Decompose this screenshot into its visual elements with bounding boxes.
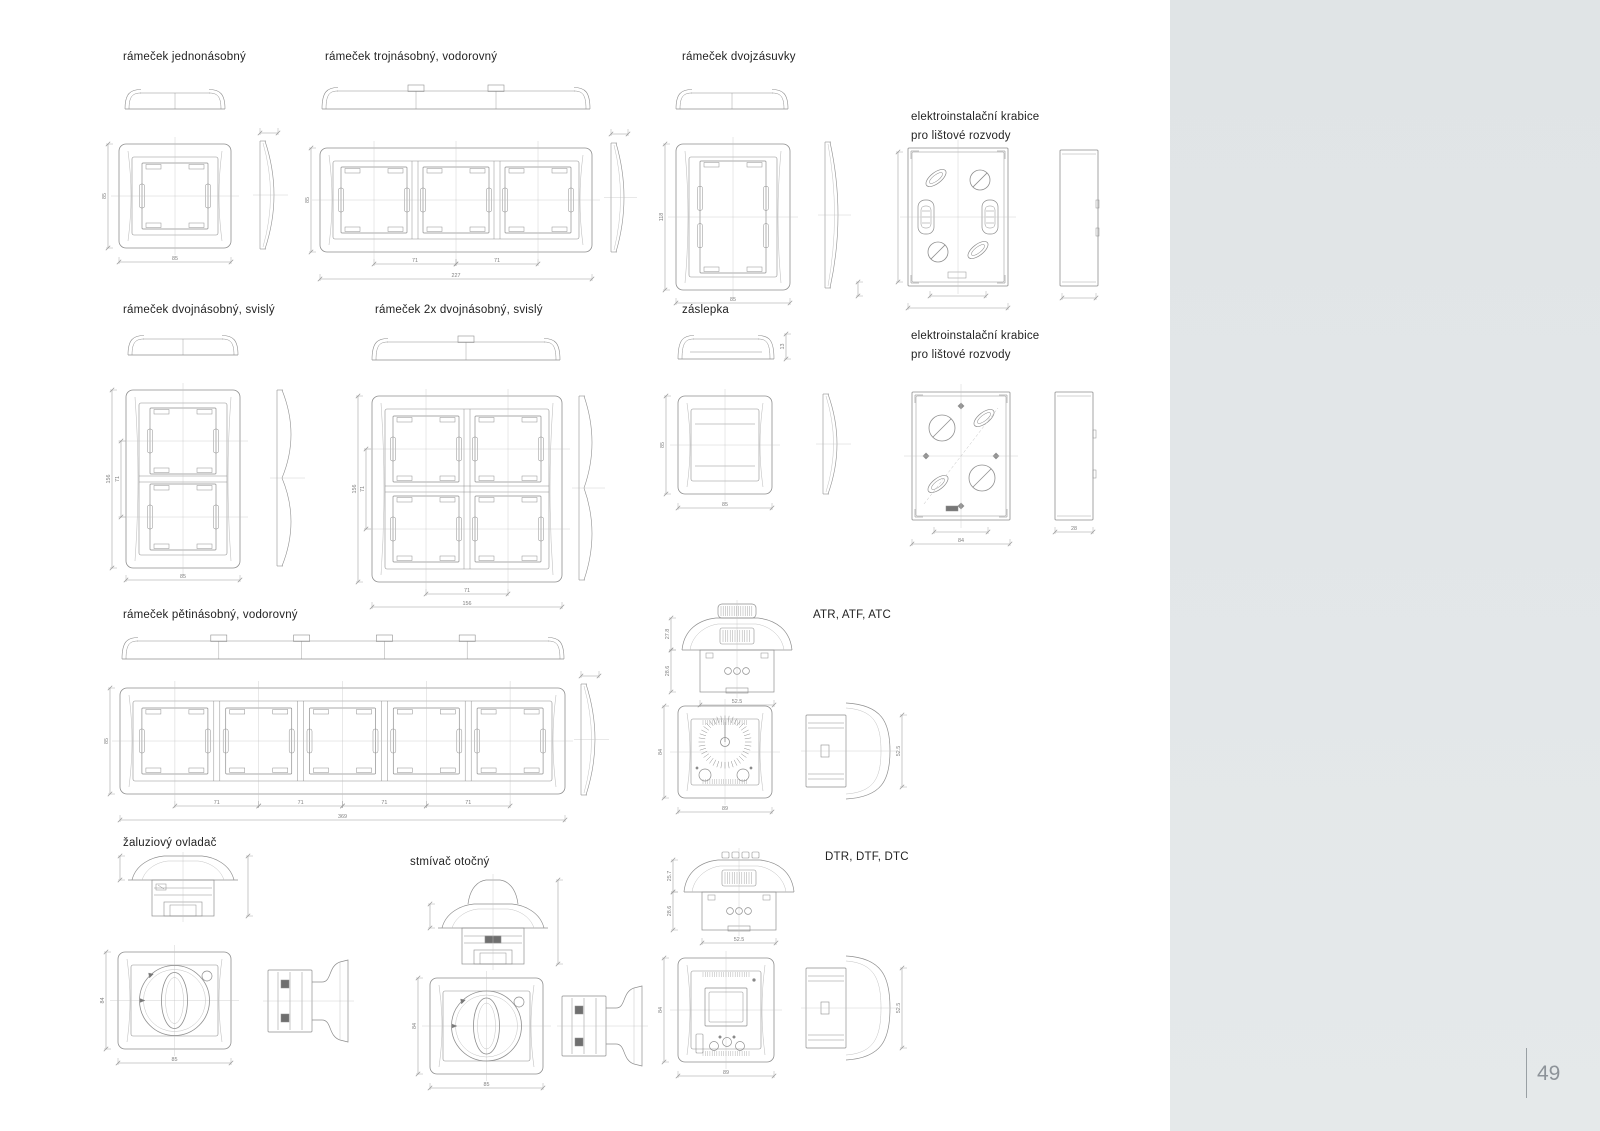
svg-text:28: 28 <box>1071 526 1077 532</box>
label-installation-box-top: elektroinstalační krabice pro lištové ro… <box>911 108 1039 146</box>
label-text: ATR, ATF, ATC <box>813 609 891 621</box>
label-text: stmívač otočný <box>410 856 490 868</box>
label-text: pro lištové rozvody <box>911 127 1039 146</box>
label-single-frame: rámeček jednonásobný <box>123 48 246 67</box>
label-text: rámeček dvojzásuvky <box>682 51 796 63</box>
svg-text:156: 156 <box>106 475 112 484</box>
label-text: rámeček pětinásobný, vodorovný <box>123 609 298 621</box>
svg-text:85: 85 <box>102 193 108 199</box>
label-double-frame-vertical: rámeček dvojnásobný, svislý <box>123 301 275 320</box>
label-text: rámeček dvojnásobný, svislý <box>123 304 275 316</box>
installation-box-top-drawing <box>896 140 1099 310</box>
svg-text:89: 89 <box>722 806 728 812</box>
svg-text:118: 118 <box>659 213 665 222</box>
blank-plate-drawing: 138585 <box>660 332 851 510</box>
svg-text:71: 71 <box>412 258 418 264</box>
svg-text:13: 13 <box>780 344 786 350</box>
svg-text:85: 85 <box>104 738 110 744</box>
svg-text:71: 71 <box>464 588 470 594</box>
svg-text:369: 369 <box>338 814 347 820</box>
svg-text:71: 71 <box>298 800 304 806</box>
svg-text:85: 85 <box>172 1057 178 1063</box>
svg-text:27.8: 27.8 <box>665 629 671 640</box>
blind-controller-drawing: 8485 <box>100 852 354 1065</box>
svg-text:71: 71 <box>494 258 500 264</box>
single-frame-drawing: 8585 <box>102 90 288 265</box>
label-thermostat-analog: ATR, ATF, ATC <box>813 606 891 625</box>
five-frame-horizontal-drawing: 8571717171369 <box>104 635 609 822</box>
svg-text:71: 71 <box>465 800 471 806</box>
svg-text:85: 85 <box>484 1082 490 1088</box>
svg-text:25.7: 25.7 <box>667 871 673 882</box>
label-text: žaluziový ovladač <box>123 837 217 849</box>
label-text: elektroinstalační krabice <box>911 327 1039 346</box>
label-text: pro lištové rozvody <box>911 346 1039 365</box>
double-frame-vertical-drawing: 1567185 <box>106 336 305 583</box>
label-text: rámeček trojnásobný, vodorovný <box>325 51 497 63</box>
rotary-dimmer-drawing: 8485 <box>412 874 648 1090</box>
svg-text:71: 71 <box>115 476 121 482</box>
svg-text:28.6: 28.6 <box>667 906 673 917</box>
label-blind-controller: žaluziový ovladač <box>123 834 217 853</box>
label-blank-plate: záslepka <box>682 301 729 320</box>
svg-text:71: 71 <box>214 800 220 806</box>
installation-box-bottom-drawing: 8428 <box>904 384 1096 546</box>
double-2x-frame-vertical-drawing: 1567171156 <box>352 336 605 609</box>
svg-text:227: 227 <box>452 273 461 279</box>
svg-text:85: 85 <box>722 502 728 508</box>
page-number-divider <box>1526 1048 1527 1098</box>
svg-text:71: 71 <box>360 486 366 492</box>
label-five-frame: rámeček pětinásobný, vodorovný <box>123 606 298 625</box>
label-thermostat-digital: DTR, DTF, DTC <box>825 848 909 867</box>
svg-text:71: 71 <box>381 800 387 806</box>
right-margin-panel <box>1170 0 1600 1131</box>
svg-text:84: 84 <box>658 749 664 755</box>
thermostat-analog-drawing: 27.828.652.5848952.5 <box>658 600 907 814</box>
svg-text:156: 156 <box>352 485 358 494</box>
svg-text:52.5: 52.5 <box>732 699 743 705</box>
label-text: záslepka <box>682 304 729 316</box>
svg-text:85: 85 <box>180 574 186 580</box>
svg-text:52.5: 52.5 <box>896 746 902 757</box>
label-text: rámeček 2x dvojnásobný, svislý <box>375 304 543 316</box>
svg-text:84: 84 <box>412 1023 418 1029</box>
thermostat-digital-drawing: 25.728.652.5848952.5 <box>658 848 907 1078</box>
label-triple-frame: rámeček trojnásobný, vodorovný <box>325 48 497 67</box>
label-installation-box-bottom: elektroinstalační krabice pro lištové ro… <box>911 327 1039 365</box>
svg-text:52.5: 52.5 <box>896 1003 902 1014</box>
svg-text:84: 84 <box>958 538 964 544</box>
svg-text:52.5: 52.5 <box>734 937 745 943</box>
double-socket-frame-drawing: 11885 <box>659 90 863 306</box>
label-text: elektroinstalační krabice <box>911 108 1039 127</box>
label-text: rámeček jednonásobný <box>123 51 246 63</box>
svg-text:85: 85 <box>730 297 736 303</box>
svg-text:84: 84 <box>100 998 106 1004</box>
label-double-2x-frame: rámeček 2x dvojnásobný, svislý <box>375 301 543 320</box>
svg-text:28.6: 28.6 <box>665 666 671 677</box>
svg-text:85: 85 <box>172 256 178 262</box>
page-number-text: 49 <box>1537 1062 1560 1085</box>
svg-text:84: 84 <box>658 1007 664 1013</box>
label-rotary-dimmer: stmívač otočný <box>410 853 490 872</box>
svg-text:85: 85 <box>305 197 311 203</box>
page-number: 49 <box>1537 1062 1560 1086</box>
svg-text:85: 85 <box>660 442 666 448</box>
triple-frame-horizontal-drawing: 857171227 <box>305 85 637 281</box>
label-text: DTR, DTF, DTC <box>825 851 909 863</box>
svg-text:89: 89 <box>723 1070 729 1076</box>
label-double-socket-frame: rámeček dvojzásuvky <box>682 48 796 67</box>
svg-text:156: 156 <box>463 601 472 607</box>
